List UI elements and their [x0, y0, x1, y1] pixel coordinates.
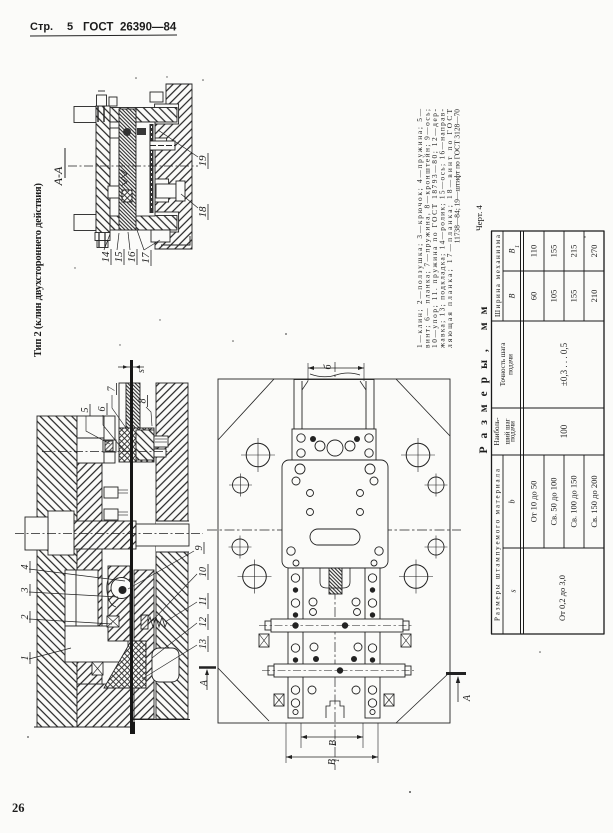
- svg-text:3: 3: [20, 588, 31, 594]
- svg-text:1: 1: [20, 656, 31, 661]
- svg-text:60: 60: [529, 292, 539, 301]
- svg-text:подачи: подачи: [507, 354, 515, 375]
- svg-text:В: В: [328, 740, 339, 746]
- svg-text:1: 1: [333, 759, 341, 763]
- svg-text:26390—84: 26390—84: [120, 22, 177, 34]
- svg-text:В: В: [508, 293, 517, 298]
- svg-text:От 10 до 50: От 10 до 50: [529, 481, 539, 523]
- svg-text:14: 14: [100, 251, 112, 263]
- svg-text:18: 18: [197, 206, 209, 218]
- svg-text:15: 15: [113, 251, 125, 263]
- svg-text:Размеры, мм: Размеры, мм: [478, 299, 490, 454]
- svg-text:s: s: [136, 369, 147, 373]
- svg-text:7: 7: [107, 386, 118, 392]
- svg-text:26: 26: [12, 801, 25, 815]
- svg-text:Наиболь-: Наиболь-: [493, 417, 501, 446]
- svg-text:16: 16: [126, 251, 138, 263]
- svg-text:6: 6: [97, 407, 108, 412]
- svg-text:19: 19: [197, 155, 209, 167]
- svg-text:11: 11: [198, 596, 209, 605]
- svg-text:b: b: [508, 500, 517, 504]
- svg-text:1: 1: [515, 245, 521, 248]
- svg-text:12: 12: [198, 617, 209, 627]
- svg-text:Св. 50 до 100: Св. 50 до 100: [549, 477, 559, 525]
- svg-text:5: 5: [67, 21, 73, 33]
- svg-text:17: 17: [140, 252, 152, 264]
- svg-text:5: 5: [80, 408, 91, 413]
- svg-text:105: 105: [549, 290, 559, 303]
- svg-text:Стр.: Стр.: [30, 21, 53, 33]
- svg-text:А: А: [199, 679, 210, 687]
- svg-text:155: 155: [549, 245, 559, 258]
- svg-text:215: 215: [569, 245, 579, 258]
- svg-text:13: 13: [198, 639, 209, 649]
- svg-text:Тип 2 (клин двухстороннего дей: Тип 2 (клин двухстороннего действия): [33, 183, 44, 358]
- svg-text:4: 4: [20, 565, 31, 570]
- svg-text:10: 10: [198, 567, 209, 577]
- svg-text:155: 155: [569, 290, 579, 303]
- svg-text:Ширина механизма: Ширина механизма: [494, 234, 502, 317]
- svg-text:А: А: [462, 694, 473, 702]
- svg-text:8: 8: [138, 399, 149, 404]
- svg-text:270: 270: [589, 245, 599, 258]
- svg-text:От 0,2 до 3,0: От 0,2 до 3,0: [557, 575, 567, 621]
- svg-text:Св. 100 до 150: Св. 100 до 150: [569, 475, 579, 527]
- svg-text:±0,3 . . . 0,5: ±0,3 . . . 0,5: [559, 342, 569, 386]
- svg-text:2: 2: [20, 615, 31, 620]
- svg-text:9: 9: [194, 546, 205, 551]
- svg-text:ГОСТ: ГОСТ: [83, 22, 113, 34]
- svg-text:подачи: подачи: [509, 421, 517, 442]
- svg-text:210: 210: [589, 290, 599, 303]
- svg-text:Размеры штампуемого материала: Размеры штампуемого материала: [494, 468, 502, 621]
- svg-text:Св. 150 до 200: Св. 150 до 200: [589, 475, 599, 527]
- svg-text:А-А: А-А: [51, 166, 65, 186]
- svg-text:100: 100: [559, 424, 569, 438]
- svg-text:11738—84; 19—штифт по ГОСТ 312: 11738—84; 19—штифт по ГОСТ 3128—70: [453, 109, 462, 244]
- svg-text:110: 110: [529, 245, 539, 257]
- svg-text:Черт. 4: Черт. 4: [474, 204, 484, 230]
- svg-text:s: s: [509, 589, 518, 592]
- svg-text:В: В: [508, 248, 517, 253]
- svg-text:б: б: [323, 364, 334, 370]
